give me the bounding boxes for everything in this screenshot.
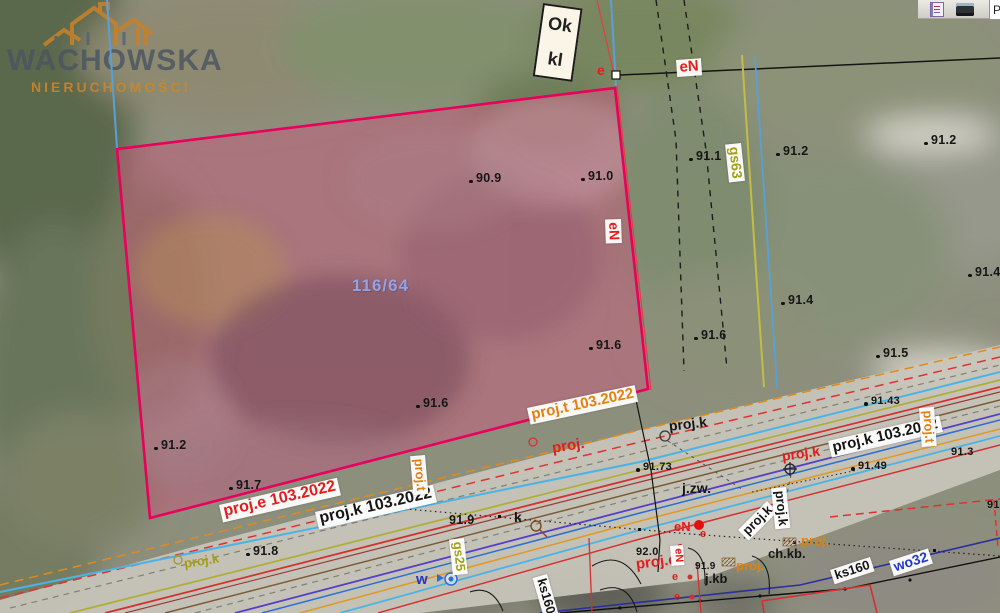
ok-label: Ok	[547, 13, 574, 37]
map-label-proj-o2: proj.	[801, 534, 829, 548]
map-label-gs63-line: gs63	[725, 143, 745, 182]
map-label-ch-kb: ch.kb.	[768, 547, 806, 561]
map-label-j-zw: j.zw.	[682, 481, 711, 496]
map-label-ks160-bottom: ks160	[830, 557, 875, 584]
map-label-elev-91-49: 91.49	[858, 461, 887, 473]
map-label-eN-bottom-vertical: eN	[670, 545, 684, 566]
map-label-proj-k-olive: proj.k	[183, 551, 220, 570]
toolbar-button[interactable]: P	[989, 0, 1000, 20]
map-label-elev-91-9-a: 91.9	[449, 514, 475, 527]
map-label-wo32: wo32	[889, 548, 933, 576]
map-label-elev-91-43: 91.43	[871, 396, 900, 408]
map-label-elev-91-5: 91.5	[883, 347, 909, 360]
map-label-elev-91-2-b: 91.2	[931, 134, 957, 147]
map-label-k-point: k	[514, 510, 522, 525]
map-label-elev-91-6-b: 91.6	[701, 329, 727, 342]
monitor-icon[interactable]	[956, 3, 974, 16]
map-label-elev-91-3: 91.3	[951, 447, 974, 459]
map-label-proj-o1: proj.	[736, 559, 764, 573]
kl-label: kl	[546, 48, 564, 71]
map-label-e-b3: e	[672, 572, 678, 584]
form-icon[interactable]	[930, 2, 944, 17]
browser-toolbar: P	[918, 0, 1000, 19]
map-label-elev-91-6-a: 91.6	[596, 339, 622, 352]
map-canvas[interactable]: WACHOWSKA NIERUCHOMOŚCI	[0, 0, 1000, 613]
map-label-e-b4: e	[674, 592, 680, 604]
map-label-elev-edge-91: 91	[987, 500, 1000, 512]
map-label-e-top: e	[597, 63, 605, 78]
map-label-elev-91-4-edge: 91.4	[975, 266, 1000, 279]
utility-label-box: Ok kl	[533, 3, 583, 82]
map-label-elev-91-2-a: 91.2	[783, 145, 809, 158]
map-label-proj-t-103: proj.t 103.2022	[527, 385, 638, 424]
labels-layer: Ok kl eeNeNgs6391.191.291.290.991.0116/6…	[0, 0, 1000, 613]
map-label-gs25-line: gs25	[449, 538, 467, 575]
map-label-proj-label-mid: proj.	[551, 436, 586, 457]
map-label-ks160-vertical: ks160	[533, 574, 559, 613]
map-label-elev-91-4-a: 91.4	[788, 294, 814, 307]
map-label-proj-k-diag: proj.k	[738, 501, 778, 541]
map-label-elev-90-9: 90.9	[476, 172, 502, 185]
map-label-e-b1: e	[700, 529, 706, 541]
map-label-eN-top: eN	[676, 58, 702, 76]
map-label-proj-t-vertical-right: proj.t	[919, 407, 936, 446]
map-label-proj-k-red: proj.k	[781, 444, 821, 464]
map-label-eN-bottom: eN	[674, 520, 691, 534]
map-label-elev-91-7: 91.7	[236, 479, 262, 492]
map-label-proj-k-mid: proj.k	[668, 414, 708, 433]
map-label-elev-91-6-c: 91.6	[423, 397, 449, 410]
map-label-w-point: w	[416, 572, 428, 588]
map-label-proj-k-vert: proj.k	[771, 487, 790, 530]
map-label-elev-91-0: 91.0	[588, 170, 614, 183]
map-label-j-kb: j.kb	[705, 572, 727, 586]
map-label-proj-t-vertical-left: proj.t	[410, 455, 428, 495]
map-label-parcel-number: 116/64	[352, 277, 409, 295]
map-label-elev-91-73: 91.73	[643, 462, 672, 474]
map-label-elev-91-2-c: 91.2	[161, 439, 187, 452]
map-label-elev-91-1: 91.1	[696, 150, 722, 163]
map-label-elev-91-8: 91.8	[253, 545, 279, 558]
map-label-eN-right-vertical: eN	[605, 219, 622, 243]
